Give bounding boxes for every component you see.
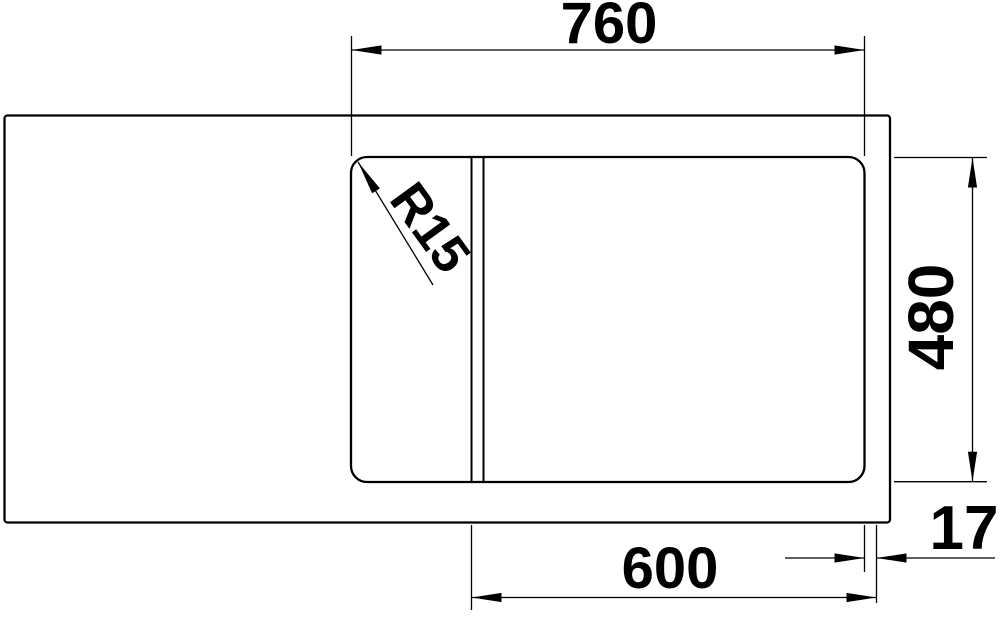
arrowhead-left-icon: [877, 553, 907, 562]
technical-drawing-canvas: 760 480 600 17 R15: [0, 0, 1000, 619]
dimension-label-17: 17: [930, 494, 999, 563]
dimension-label-760: 760: [561, 0, 658, 56]
sink-outer-outline: [5, 116, 891, 523]
arrowhead-radius-icon: [354, 160, 380, 194]
arrowhead-left-icon: [472, 593, 502, 602]
arrowhead-left-icon: [352, 45, 382, 54]
dimension-label-r15: R15: [378, 172, 481, 283]
sink-dimension-drawing: 760 480 600 17 R15: [0, 0, 1000, 619]
arrowhead-right-icon: [835, 45, 865, 54]
sink-outlines: [5, 116, 891, 523]
dimension-label-480: 480: [895, 264, 967, 371]
arrowhead-down-icon: [968, 452, 977, 482]
arrowhead-right-icon: [835, 553, 865, 562]
dimension-label-600: 600: [622, 536, 719, 601]
arrowhead-up-icon: [968, 158, 977, 188]
arrowhead-right-icon: [847, 593, 877, 602]
